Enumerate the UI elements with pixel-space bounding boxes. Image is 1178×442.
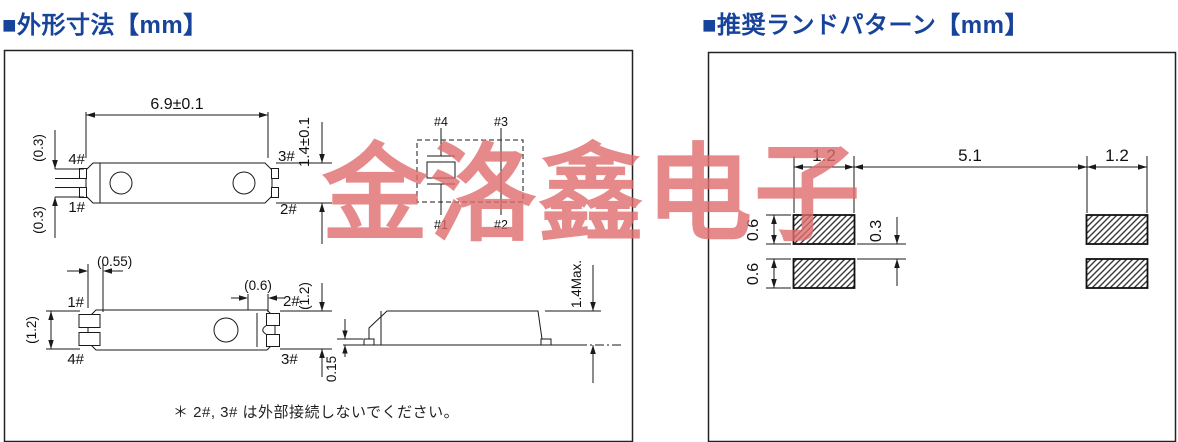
bottom-view-body [88, 310, 275, 350]
schematic-pin-4: #4 [434, 115, 448, 129]
internal-connection-schematic: #4 #3 #1 #2 [417, 115, 523, 232]
dim-standoff: 0.15 [324, 356, 339, 382]
dim-lead-bottom: (0.3) [31, 206, 46, 234]
bottom-view-pin-1: 1# [67, 294, 84, 311]
dim-edge-margin: (0.55) [97, 254, 132, 269]
top-view-pin-4: 4# [68, 151, 85, 168]
bottom-view-pin-4: 4# [67, 351, 84, 368]
dim-height-left: (1.2) [24, 316, 39, 344]
land-pattern: 1.2 5.1 1.2 0.6 0.6 [745, 146, 1148, 288]
datasheet-page: ■外形寸法【mm】 ■推奨ランドパターン【mm】 6.9± [0, 0, 1178, 442]
side-view-body [369, 311, 542, 339]
dim-castellation-width: (0.6) [244, 278, 272, 293]
dim-pad-height-top: 0.6 [745, 219, 762, 241]
technical-drawing: 6.9±0.1 1.4±0.1 (0.3) (0.3) 4# 3# 1# [0, 0, 1178, 442]
land-pattern-panel-frame [709, 53, 1176, 442]
schematic-pin-2: #2 [494, 218, 508, 232]
dim-pad-gap: 0.3 [868, 220, 885, 242]
bottom-view-hole [214, 318, 238, 342]
schematic-pin-3: #3 [494, 115, 508, 129]
top-view-body [86, 163, 272, 203]
schematic-outline-box [417, 140, 523, 202]
dim-body-width: 6.9±0.1 [150, 96, 203, 113]
dim-body-height: 1.4±0.1 [296, 117, 313, 167]
schematic-pin-1: #1 [434, 218, 448, 232]
land-pad-bottom-right [1087, 259, 1148, 288]
bottom-view: (0.55) (0.6) (1.2) (1.2) [24, 254, 332, 377]
bottom-view-pin-3: 3# [281, 351, 298, 368]
land-pad-top-right [1087, 215, 1148, 244]
dim-pad-width-left: 1.2 [812, 146, 836, 165]
dim-max-height: 1.4Max. [569, 260, 584, 308]
top-view-hole-right [233, 172, 255, 194]
dim-pad-width-right: 1.2 [1105, 146, 1129, 165]
top-view-pin-3: 3# [278, 148, 295, 165]
top-view-hole-left [110, 172, 132, 194]
crystal-symbol [427, 162, 455, 178]
top-view-pin-1: 1# [68, 199, 85, 216]
top-view-pin-2: 2# [280, 201, 297, 218]
dim-pad-pitch: 5.1 [958, 146, 982, 165]
side-view: 0.15 1.4Max. [324, 260, 622, 383]
dim-lead-top: (0.3) [31, 134, 46, 162]
outline-panel-frame [5, 51, 633, 442]
bottom-view-pin-2: 2# [283, 293, 300, 310]
land-pad-top-left [794, 215, 855, 244]
land-pad-bottom-left [794, 259, 855, 288]
dim-pad-height-bottom: 0.6 [745, 263, 762, 285]
top-view: 6.9±0.1 1.4±0.1 (0.3) (0.3) 4# 3# 1# [31, 96, 332, 244]
